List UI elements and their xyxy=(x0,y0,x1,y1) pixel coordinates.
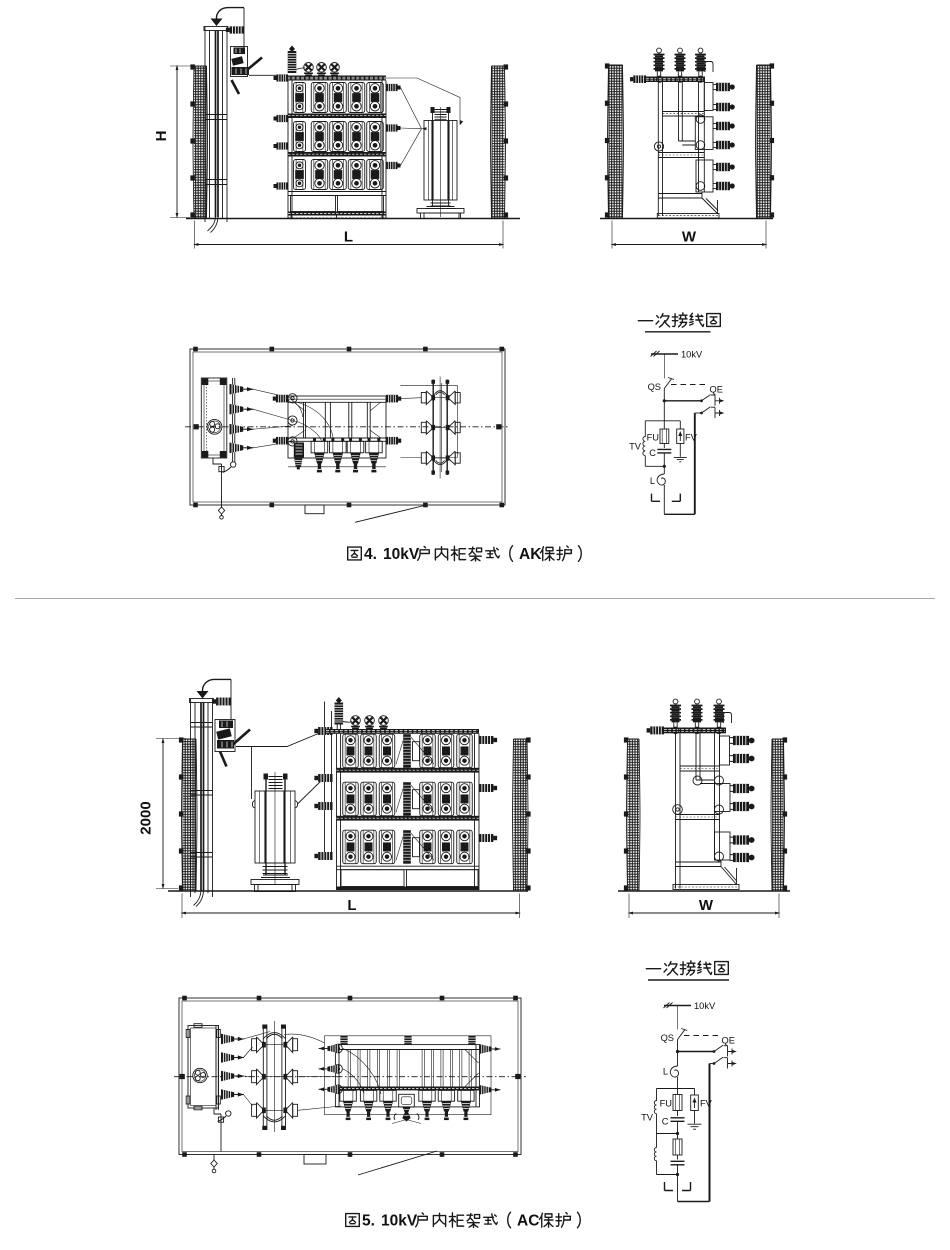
svg-text:QS: QS xyxy=(661,1033,674,1043)
svg-text:FU: FU xyxy=(647,433,659,443)
svg-text:FV: FV xyxy=(685,433,698,443)
svg-text:W: W xyxy=(682,229,697,246)
svg-text:L: L xyxy=(650,476,655,486)
svg-text:AK: AK xyxy=(519,546,542,563)
svg-text:10kV: 10kV xyxy=(681,350,703,360)
svg-text:2000: 2000 xyxy=(138,801,155,834)
svg-text:4.: 4. xyxy=(364,546,377,563)
svg-text:L: L xyxy=(344,229,353,246)
svg-text:10kV: 10kV xyxy=(381,1213,418,1230)
svg-text:C: C xyxy=(662,1117,669,1127)
svg-text:QE: QE xyxy=(722,1036,735,1046)
svg-text:QE: QE xyxy=(710,385,723,395)
svg-text:10kV: 10kV xyxy=(694,1001,716,1011)
svg-text:C: C xyxy=(649,448,656,458)
svg-text:TV: TV xyxy=(629,442,642,452)
svg-text:L: L xyxy=(663,1067,668,1077)
svg-text:FV: FV xyxy=(700,1099,713,1109)
svg-text:W: W xyxy=(699,897,714,914)
svg-text:H: H xyxy=(153,131,170,142)
svg-text:QS: QS xyxy=(648,382,661,392)
svg-text:TV: TV xyxy=(641,1113,654,1123)
svg-text:5.: 5. xyxy=(362,1213,375,1230)
svg-text:10kV: 10kV xyxy=(383,546,420,563)
svg-text:L: L xyxy=(347,897,356,914)
svg-text:AC: AC xyxy=(517,1213,539,1230)
svg-text:FU: FU xyxy=(660,1099,672,1109)
